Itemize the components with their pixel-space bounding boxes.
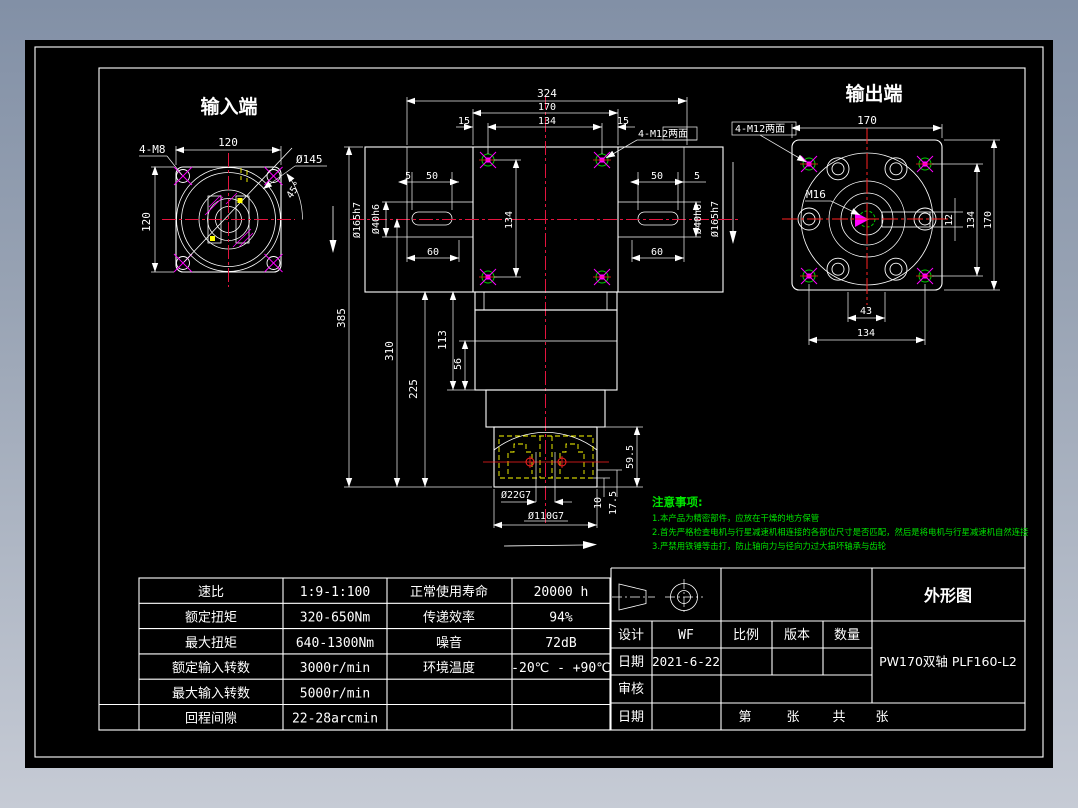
dim-height-113: 113: [436, 330, 449, 350]
table-cell: 320-650Nm: [300, 611, 371, 626]
dim-bore-left: Ø40h6: [370, 204, 382, 234]
dim-height-310: 310: [383, 341, 396, 361]
spec-table-grid: [99, 578, 610, 730]
date2-label: 日期: [618, 710, 644, 725]
table-cell: 20000 h: [534, 585, 589, 600]
dim-output-hole-spacing-v: 134: [966, 211, 977, 229]
spec-table: 速比 1:9-1:100 正常使用寿命 20000 h 额定扭矩 320-650…: [99, 578, 611, 730]
dim-flange-width: 170: [538, 102, 556, 113]
notes: 注意事项: 1.本产品为精密部件，应放在干燥的地方保管 2.首先严格检查电机与行…: [652, 495, 1029, 551]
dim-bore-110: Ø110G7: [528, 510, 564, 522]
dim-slot-5-right: 5: [694, 171, 700, 182]
note-line-2: 2.首先严格检查电机与行星减速机相连接的各部位尺寸是否匹配，然后是将电机与行星减…: [652, 527, 1029, 537]
sheet-label: 张: [875, 710, 888, 725]
version-label: 版本: [784, 628, 810, 643]
dim-offset-left: 15: [458, 116, 470, 127]
dim-bore-22: Ø22G7: [501, 489, 531, 501]
down-arrow-icon: [330, 240, 337, 253]
dim-slot-50-left: 50: [426, 171, 438, 182]
table-cell: 5000r/min: [300, 686, 370, 701]
table-cell: 22-28arcmin: [292, 712, 378, 727]
dim-output-height: 170: [983, 211, 994, 229]
down-arrow-icon: [730, 231, 737, 244]
dim-slot-5-left: 5: [405, 171, 411, 182]
dim-height-17-5: 17.5: [608, 491, 619, 515]
dim-input-width: 120: [218, 136, 238, 149]
dim-input-height: 120: [140, 212, 153, 232]
dim-output-width: 170: [857, 114, 877, 127]
dim-total-height: 385: [335, 308, 348, 328]
table-cell: 回程间隙: [185, 712, 237, 727]
table-cell: 环境温度: [423, 660, 475, 676]
dim-slot-60-right: 60: [651, 247, 663, 258]
input-flange-geometry: [162, 148, 303, 287]
note-line-1: 1.本产品为精密部件，应放在干燥的地方保管: [652, 513, 819, 523]
dim-output-hole-spacing-b: 134: [857, 328, 875, 339]
sheet-label: 共: [832, 710, 845, 725]
input-view-dimensions: 120 120 4-M8 Ø145 45°: [139, 136, 327, 272]
input-view-title: 输入端: [200, 95, 257, 118]
engineering-drawing: 输入端: [0, 0, 1078, 808]
dim-height-56: 56: [453, 358, 464, 370]
dim-slot-50-right: 50: [651, 171, 663, 182]
sheet-label: 张: [786, 710, 799, 725]
doc-type: 外形图: [923, 586, 972, 605]
output-view-dimensions: 4-M12两面 170 M16 12 134 170 43 134: [732, 114, 1000, 345]
front-view: 324 170 134 15 15 4-M12两面 5 50 60: [330, 87, 741, 549]
label-input-bolts: 4-M8: [139, 143, 166, 156]
dim-bore-right: Ø40h6: [692, 204, 704, 234]
dim-slot-60-left: 60: [427, 247, 439, 258]
dim-height-10: 10: [593, 497, 604, 509]
title-block: 外形图 设计 WF 比例 版本 数量 日期 2021-6-22 PW170双轴 …: [611, 568, 1025, 730]
output-view-title: 输出端: [845, 82, 902, 105]
qty-label: 数量: [834, 628, 860, 643]
spec-table-cells: 速比 1:9-1:100 正常使用寿命 20000 h 额定扭矩 320-650…: [172, 584, 611, 727]
output-end-view: 输出端 4-M12两面 170 M16: [732, 82, 1000, 345]
table-cell: -20℃ - +90℃: [511, 661, 611, 676]
output-flange-geometry: [782, 128, 952, 305]
label-bolt-circle: Ø145: [296, 153, 323, 166]
label-thread-m16: M16: [806, 188, 826, 201]
dim-spigot-right: Ø165h7: [709, 201, 721, 237]
dim-43: 43: [860, 306, 872, 317]
table-cell: 额定输入转数: [172, 660, 250, 676]
note-line-3: 3.严禁用铁锤等击打，防止轴向力与径向力过大损坏轴承与齿轮: [652, 541, 887, 551]
table-cell: 最大输入转数: [172, 685, 250, 701]
sheet-label: 第: [738, 710, 751, 725]
dim-height-225: 225: [407, 379, 420, 399]
table-cell: 额定扭矩: [185, 611, 237, 626]
dim-hole-spacing-v: 134: [504, 211, 515, 229]
design-label: 设计: [618, 628, 644, 643]
dim-key-width: 12: [944, 214, 955, 226]
table-cell: 最大扭矩: [185, 636, 237, 651]
table-cell: 速比: [198, 585, 224, 600]
label-output-bolts: 4-M12两面: [735, 124, 785, 135]
table-cell: 噪音: [436, 635, 462, 651]
clamp-screw-icon: [238, 198, 243, 203]
check-label: 审核: [618, 682, 644, 697]
title-block-cells: 外形图 设计 WF 比例 版本 数量 日期 2021-6-22 PW170双轴 …: [618, 586, 1017, 725]
input-end-view: 输入端: [139, 95, 327, 287]
notes-title: 注意事项:: [652, 495, 703, 509]
dim-angle-45: 45°: [285, 180, 304, 201]
dim-height-59-5: 59.5: [625, 445, 636, 469]
designer-name: WF: [678, 628, 694, 643]
clamp-screw-icon: [210, 236, 215, 241]
date-value: 2021-6-22: [652, 654, 720, 669]
dim-spigot-left: Ø165h7: [351, 202, 363, 238]
right-arrow-icon: [583, 541, 597, 549]
table-cell: 94%: [549, 611, 573, 626]
table-cell: 640-1300Nm: [296, 636, 374, 651]
table-cell: 3000r/min: [300, 661, 370, 676]
model-number: PW170双轴 PLF160-L2: [879, 654, 1017, 669]
scale-label: 比例: [733, 628, 759, 643]
table-cell: 正常使用寿命: [410, 584, 488, 600]
gearbox-body-geometry: [350, 95, 740, 524]
dim-offset-right: 15: [617, 116, 629, 127]
table-cell: 1:9-1:100: [300, 585, 370, 600]
table-cell: 72dB: [545, 636, 576, 651]
date-label: 日期: [618, 655, 644, 670]
projection-symbol: [612, 579, 703, 615]
table-cell: 传递效率: [423, 610, 475, 626]
dim-hole-spacing: 134: [538, 116, 556, 127]
dim-overall-width: 324: [537, 87, 557, 100]
